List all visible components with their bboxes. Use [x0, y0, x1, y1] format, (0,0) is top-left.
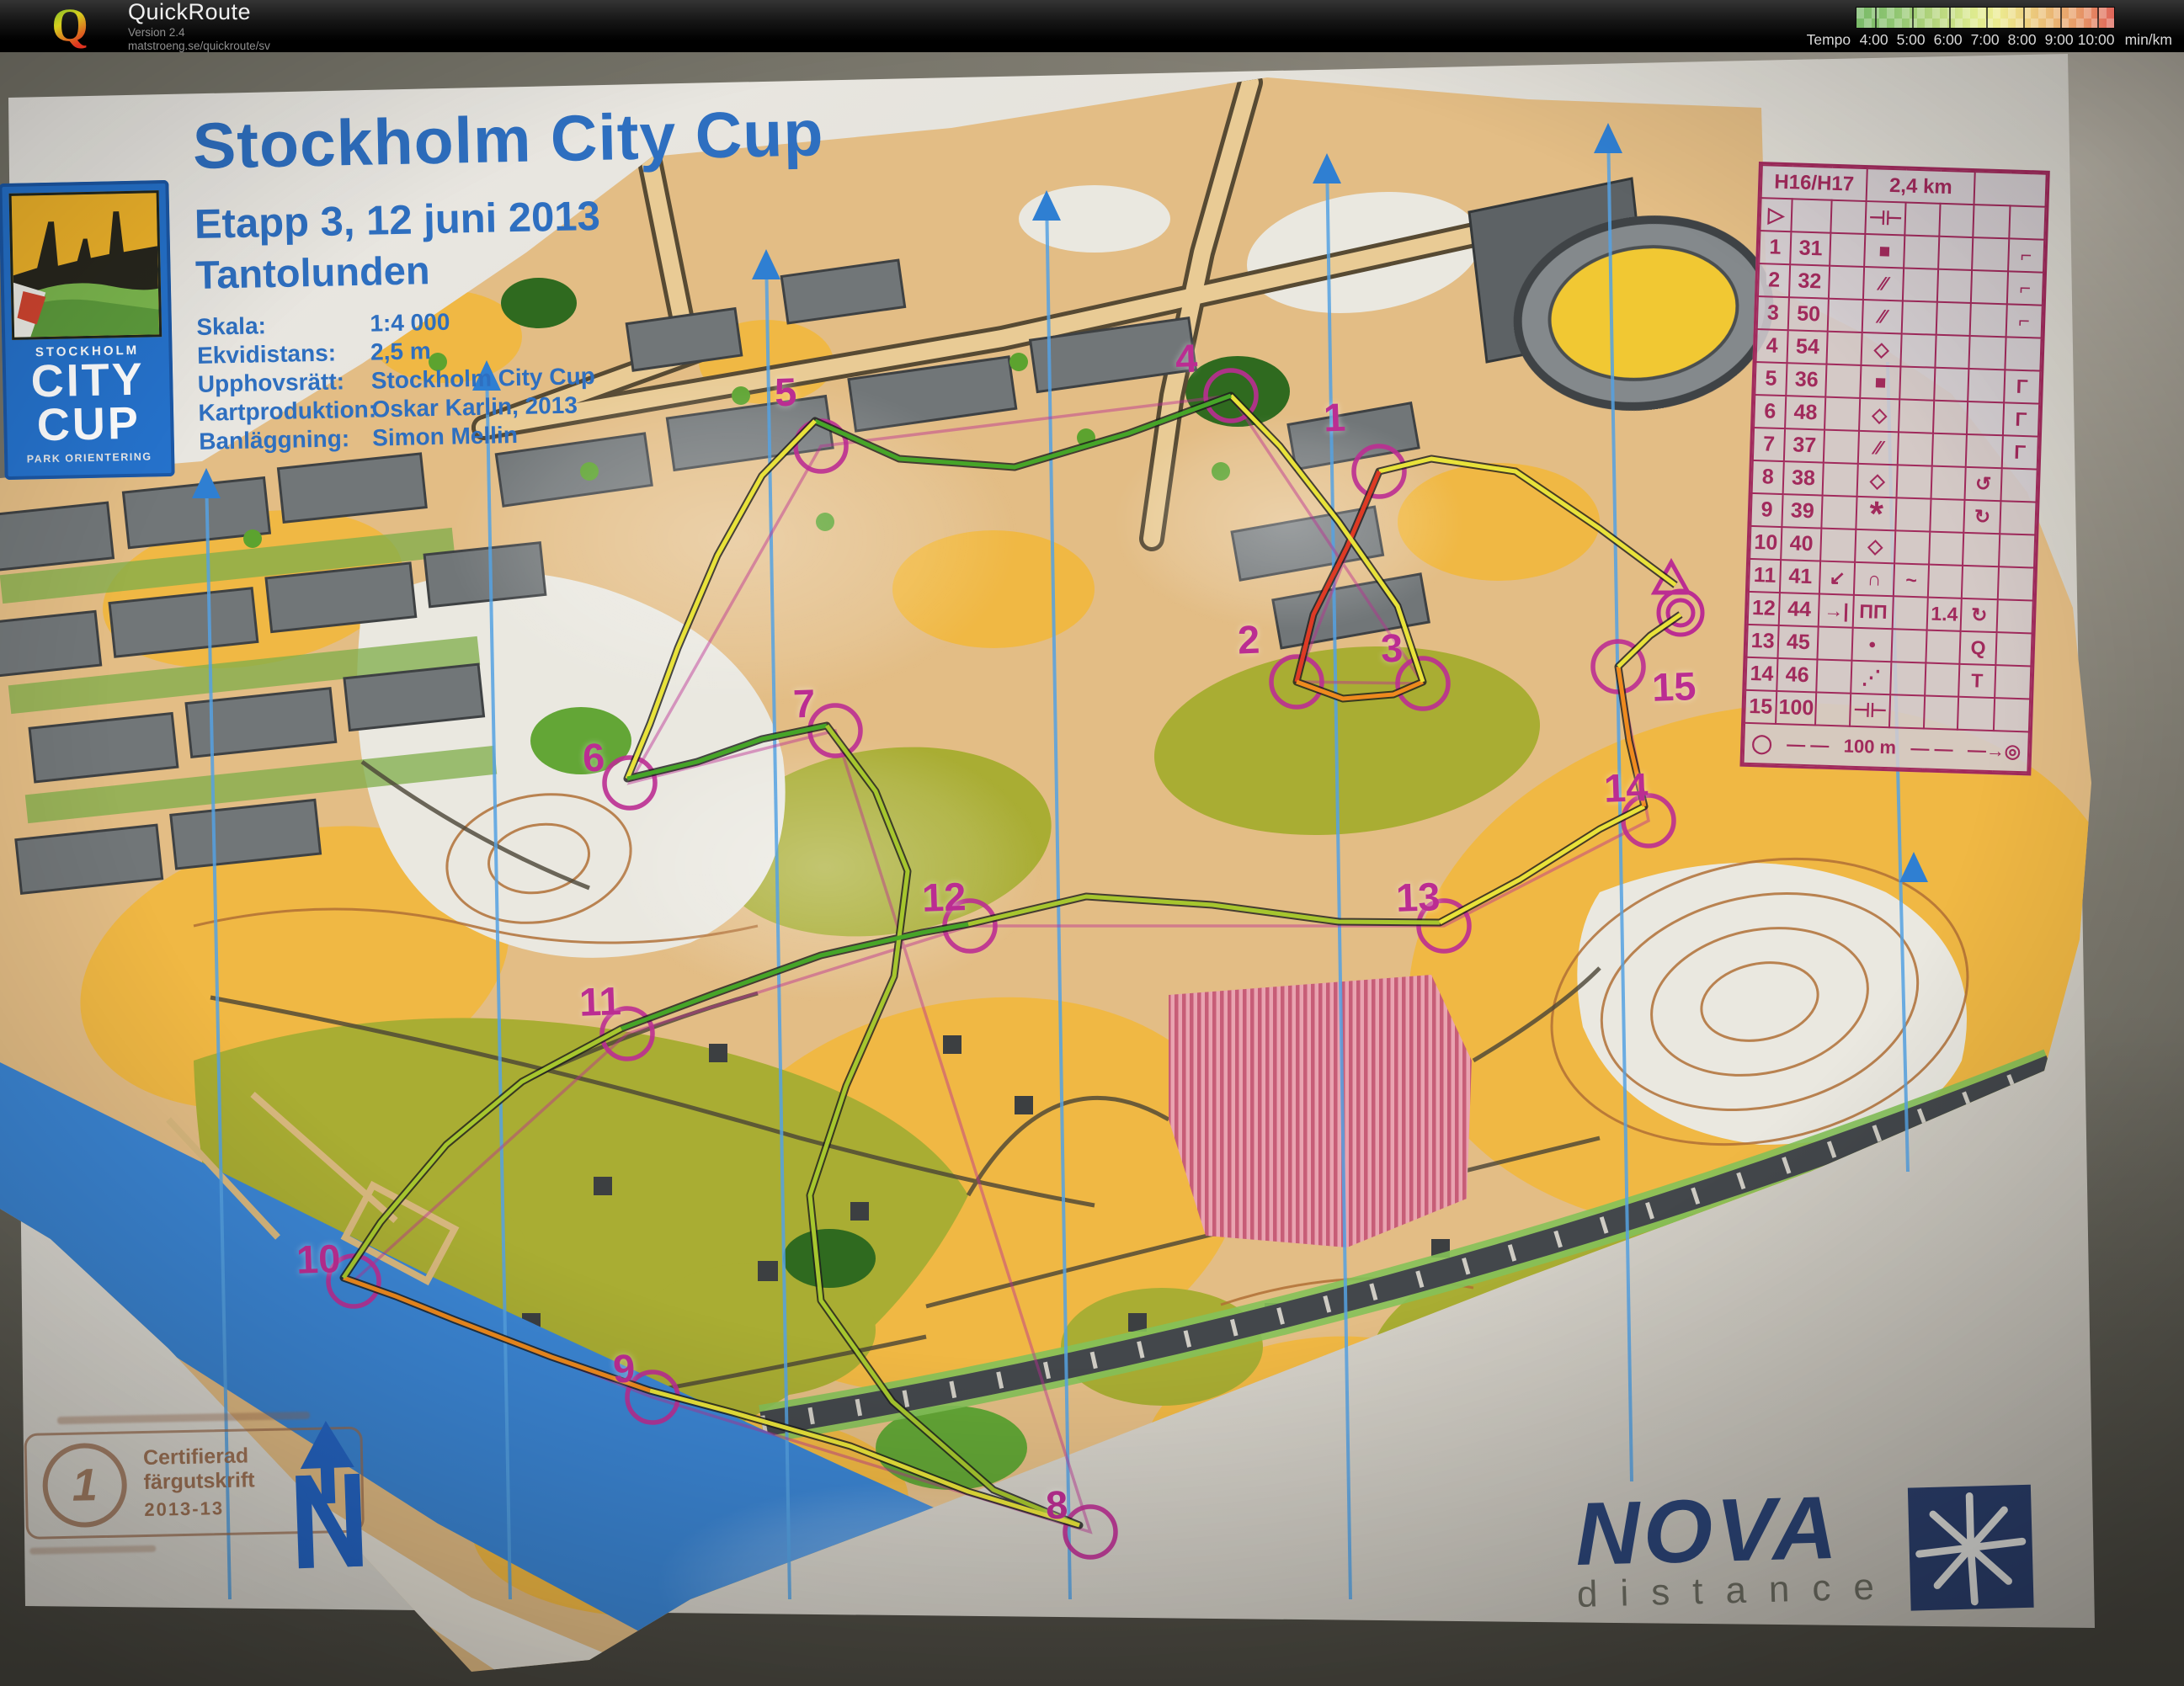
- map-title-block: Stockholm City Cup Etapp 3, 12 juni 2013…: [192, 96, 830, 456]
- tempo-unit: min/km: [2125, 31, 2172, 49]
- map-location: Tantolunden: [195, 238, 828, 298]
- tempo-tick-label: 6:00: [1930, 31, 1967, 49]
- north-compass-icon: [275, 1417, 381, 1577]
- finish-funnel-icon: ◯: [1751, 732, 1772, 755]
- tempo-tick-label: 5:00: [1893, 31, 1930, 49]
- sheet-scale-row: ◯ — — 100 m — — —→◎: [1745, 732, 2028, 763]
- tempo-tick-label: 4:00: [1856, 31, 1893, 49]
- nova-subtitle: distance: [1576, 1566, 1897, 1616]
- control-number-2: 2: [1237, 616, 1260, 663]
- nova-star-icon: [1908, 1485, 2034, 1611]
- certification-year: 2013-13: [144, 1495, 256, 1522]
- tempo-tick: [2097, 8, 2099, 28]
- quickroute-logo-icon: Q: [45, 2, 94, 51]
- control-number-15: 15: [1651, 662, 1697, 710]
- tempo-tick-labels: 4:005:006:007:008:009:0010:00: [1856, 31, 2115, 49]
- forbidden-area: [1169, 975, 1472, 1247]
- control-number-14: 14: [1603, 763, 1649, 811]
- control-number-3: 3: [1380, 625, 1404, 672]
- event-logo: STOCKHOLM CITY CUP PARK ORIENTERING: [0, 180, 175, 480]
- control-description-table: H16/H17 2,4 km ▷⊣⊢131■⌐232∕∕⌐350∕∕⌐454◇5…: [1743, 164, 2048, 773]
- control-number-4: 4: [1175, 335, 1198, 382]
- control-number-11: 11: [578, 977, 622, 1025]
- tempo-gradient-bar: [1856, 7, 2115, 29]
- finish-circle-icon: —→◎: [1968, 739, 2022, 763]
- app-url[interactable]: matstroeng.se/quickroute/sv: [128, 40, 270, 52]
- control-number-8: 8: [1045, 1481, 1068, 1529]
- map-subtitle: Etapp 3, 12 juni 2013: [194, 188, 826, 248]
- event-logo-line2: CITY: [3, 357, 173, 404]
- control-number-13: 13: [1395, 873, 1441, 921]
- nova-name: NOVA: [1574, 1488, 1896, 1572]
- tempo-tick-label: 8:00: [2004, 31, 2041, 49]
- certification-line2: färgutskrift: [143, 1468, 255, 1495]
- tempo-tick: [1949, 8, 1951, 28]
- app-version: Version 2.4: [128, 27, 270, 39]
- svg-text:Q: Q: [51, 2, 88, 51]
- event-logo-line3: CUP: [3, 401, 174, 448]
- control-number-12: 12: [921, 873, 967, 921]
- tempo-tick: [1875, 8, 1877, 28]
- nova-distance-logo: NOVA distance: [1574, 1485, 2034, 1620]
- app-titles: QuickRoute Version 2.4 matstroeng.se/qui…: [128, 1, 270, 51]
- tempo-tick: [1912, 8, 1914, 28]
- tempo-tick-label: 9:00: [2041, 31, 2078, 49]
- event-logo-picture: [9, 190, 162, 340]
- quickroute-window: Q QuickRoute Version 2.4 matstroeng.se/q…: [0, 0, 2184, 1686]
- control-number-7: 7: [792, 680, 816, 727]
- control-number-1: 1: [1323, 394, 1346, 441]
- control-number-9: 9: [612, 1345, 636, 1392]
- certification-line1: Certifierad: [143, 1444, 255, 1471]
- tempo-tick: [1986, 8, 1988, 28]
- sheet-course-distance: 2,4 km: [1867, 168, 1976, 205]
- tempo-tick-label: 7:00: [1967, 31, 2004, 49]
- map-info-block: Skala:1:4 000Ekvidistans:2,5 mUpphovsrät…: [196, 300, 830, 456]
- map-title: Stockholm City Cup: [192, 96, 824, 184]
- control-number-6: 6: [582, 734, 605, 781]
- tempo-tick-label: 10:00: [2078, 31, 2115, 49]
- sheet-scale-label: 100 m: [1843, 736, 1896, 759]
- tempo-legend: Tempo 4:005:006:007:008:009:0010:00 min/…: [1807, 7, 2172, 49]
- sheet-course-class: H16/H17: [1761, 165, 1867, 201]
- tempo-tick: [2023, 8, 2025, 28]
- control-description-sheet: H16/H17 2,4 km ▷⊣⊢131■⌐232∕∕⌐350∕∕⌐454◇5…: [1739, 162, 2049, 776]
- event-logo-line4: PARK ORIENTERING: [4, 450, 174, 465]
- tempo-tick: [2060, 8, 2062, 28]
- control-number-10: 10: [296, 1235, 341, 1283]
- tempo-label: Tempo: [1807, 31, 1856, 49]
- app-name: QuickRoute: [128, 1, 270, 24]
- certification-seal-icon: 1: [42, 1442, 128, 1528]
